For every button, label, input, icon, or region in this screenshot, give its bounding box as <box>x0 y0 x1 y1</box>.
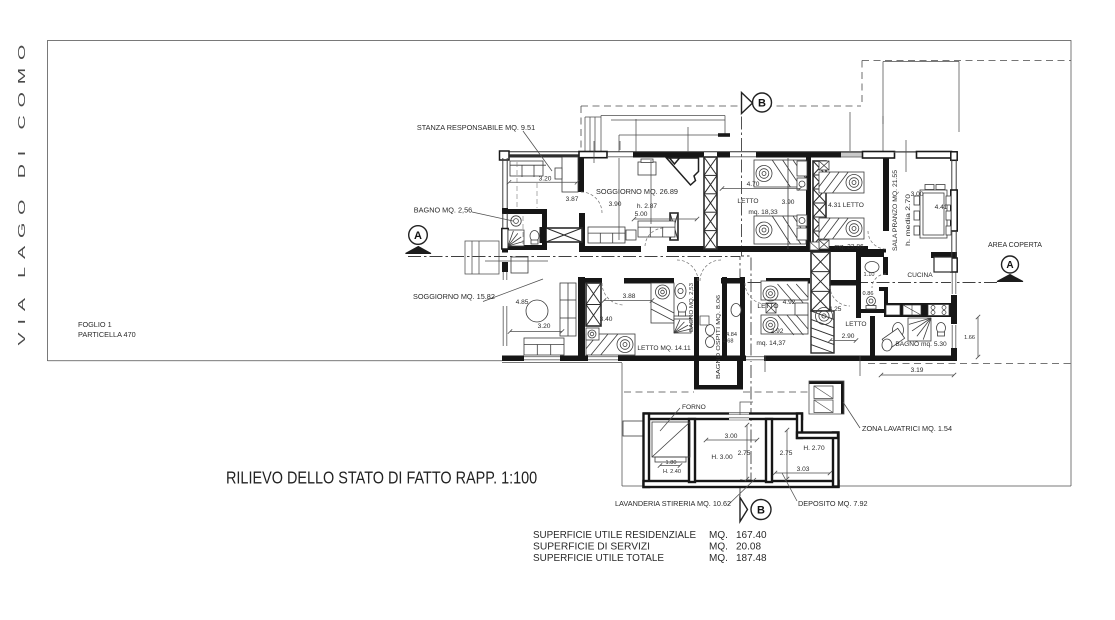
svg-text:3.20: 3.20 <box>539 176 552 183</box>
svg-text:B: B <box>757 505 765 517</box>
svg-text:PARTICELLA 470: PARTICELLA 470 <box>78 330 136 339</box>
svg-text:SUPERFICIE DI SERVIZI: SUPERFICIE DI SERVIZI <box>533 542 650 553</box>
svg-text:1.10: 1.10 <box>864 272 875 278</box>
svg-text:H. 2.70: H. 2.70 <box>803 445 825 452</box>
svg-text:1.66: 1.66 <box>964 335 975 341</box>
svg-text:0.86: 0.86 <box>863 291 874 297</box>
svg-text:1.80: 1.80 <box>666 460 677 466</box>
svg-text:3.90: 3.90 <box>609 201 622 208</box>
svg-text:3.19: 3.19 <box>911 367 924 374</box>
svg-text:DEPOSITO MQ. 7.92: DEPOSITO MQ. 7.92 <box>798 499 868 508</box>
svg-text:FOGLIO 1: FOGLIO 1 <box>78 320 112 329</box>
svg-text:2.90: 2.90 <box>842 333 855 340</box>
svg-text:A: A <box>414 230 422 242</box>
svg-text:4.41: 4.41 <box>935 204 948 211</box>
svg-text:3.20: 3.20 <box>538 323 551 330</box>
svg-text:BAGNO OSPITI MQ. 8.06: BAGNO OSPITI MQ. 8.06 <box>716 295 722 379</box>
svg-text:LAVANDERIA STIRERIA MQ. 10.62: LAVANDERIA STIRERIA MQ. 10.62 <box>615 499 731 508</box>
svg-text:2.75: 2.75 <box>738 450 751 457</box>
svg-text:B: B <box>758 98 766 110</box>
svg-text:3.03: 3.03 <box>797 466 810 473</box>
svg-text:A: A <box>1006 260 1013 271</box>
svg-text:4.68: 4.68 <box>723 339 734 345</box>
svg-text:SALA PRANZO MQ. 21.55: SALA PRANZO MQ. 21.55 <box>892 170 899 251</box>
svg-text:MQ.: MQ. <box>709 530 728 541</box>
svg-text:SOGGIORNO MQ. 15.82: SOGGIORNO MQ. 15.82 <box>413 292 495 301</box>
svg-text:LETTO: LETTO <box>845 321 866 328</box>
svg-text:H. 2.40: H. 2.40 <box>663 469 681 475</box>
svg-text:BAGNO mq. 5.30: BAGNO mq. 5.30 <box>895 341 947 348</box>
svg-text:4.84: 4.84 <box>726 332 737 338</box>
svg-text:3.88: 3.88 <box>623 293 636 300</box>
svg-text:BAGNO MQ. 2,53: BAGNO MQ. 2,53 <box>689 283 695 332</box>
svg-text:3.00: 3.00 <box>725 433 738 440</box>
svg-text:5.00: 5.00 <box>635 211 648 218</box>
svg-text:3.87: 3.87 <box>566 196 579 203</box>
svg-text:SUPERFICIE UTILE RESIDENZIALE: SUPERFICIE UTILE RESIDENZIALE <box>533 530 696 541</box>
svg-text:SUPERFICIE UTILE TOTALE: SUPERFICIE UTILE TOTALE <box>533 553 664 564</box>
svg-text:RILIEVO DELLO STATO DI FATTO R: RILIEVO DELLO STATO DI FATTO RAPP. 1:100 <box>226 468 537 488</box>
svg-text:h. 2.87: h. 2.87 <box>637 203 657 210</box>
svg-text:4.31 LETTO: 4.31 LETTO <box>828 202 864 209</box>
svg-text:LETTO: LETTO <box>757 303 778 310</box>
svg-text:3.90: 3.90 <box>782 199 795 206</box>
svg-text:4.25: 4.25 <box>829 306 842 313</box>
svg-text:4.85: 4.85 <box>516 299 529 306</box>
svg-text:SOGGIORNO MQ. 26.89: SOGGIORNO MQ. 26.89 <box>596 187 678 196</box>
svg-text:FORNO: FORNO <box>682 404 706 411</box>
svg-text:MQ.: MQ. <box>709 553 728 564</box>
svg-text:2.92: 2.92 <box>771 328 784 335</box>
svg-text:BAGNO MQ. 2,56: BAGNO MQ. 2,56 <box>414 206 472 215</box>
svg-text:LETTO: LETTO <box>737 198 758 205</box>
svg-text:167.40: 167.40 <box>736 530 767 541</box>
svg-text:VIA LAGO DI COMO: VIA LAGO DI COMO <box>17 37 28 346</box>
svg-text:4.92: 4.92 <box>783 299 796 306</box>
svg-text:mq. 23.86: mq. 23.86 <box>834 244 864 251</box>
svg-text:mq. 14,37: mq. 14,37 <box>756 340 786 347</box>
svg-text:AREA COPERTA: AREA COPERTA <box>988 240 1042 249</box>
svg-text:LETTO MQ. 14.11: LETTO MQ. 14.11 <box>637 345 691 352</box>
svg-text:mq. 18,33: mq. 18,33 <box>748 209 778 216</box>
svg-text:3.40: 3.40 <box>600 316 613 323</box>
svg-text:20.08: 20.08 <box>736 542 761 553</box>
svg-text:3,00: 3,00 <box>911 191 924 198</box>
svg-text:H. 3.00: H. 3.00 <box>711 454 733 461</box>
svg-text:187.48: 187.48 <box>736 553 767 564</box>
svg-text:2.75: 2.75 <box>780 450 793 457</box>
svg-text:MQ.: MQ. <box>709 542 728 553</box>
svg-text:4.70: 4.70 <box>747 181 760 188</box>
svg-text:CUCINA: CUCINA <box>907 272 933 279</box>
svg-text:STANZA RESPONSABILE MQ. 9.51: STANZA RESPONSABILE MQ. 9.51 <box>417 123 535 132</box>
svg-text:ZONA LAVATRICI MQ. 1.54: ZONA LAVATRICI MQ. 1.54 <box>862 424 952 433</box>
svg-text:h. media 2.70: h. media 2.70 <box>905 194 912 246</box>
